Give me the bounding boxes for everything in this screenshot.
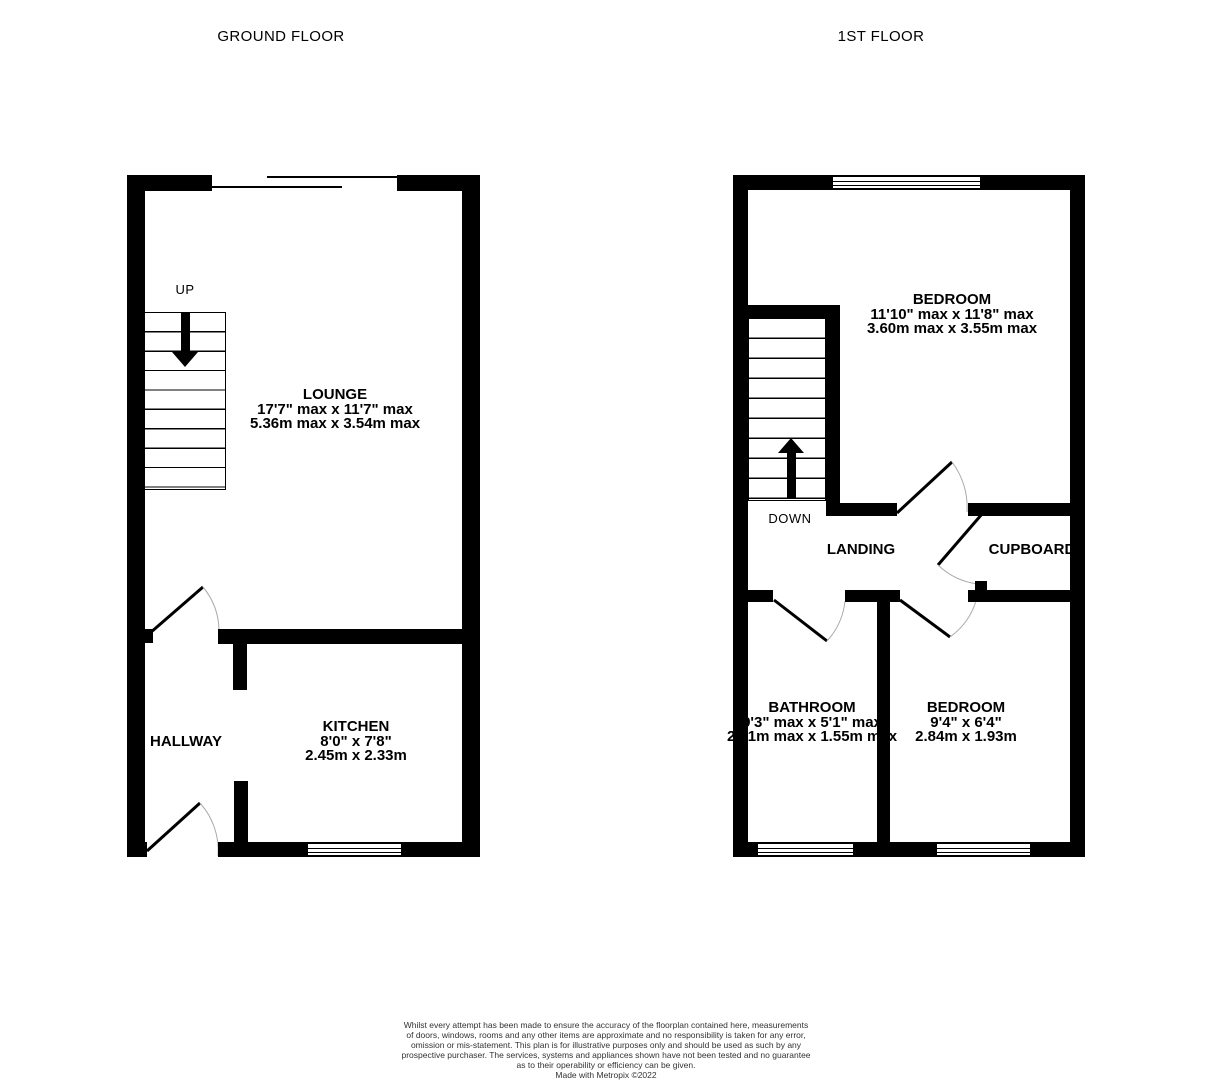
kitchen-window	[308, 842, 401, 857]
wall	[462, 175, 480, 857]
window-glazing-line	[937, 848, 1030, 849]
lounge-door-arc	[203, 587, 219, 629]
window-glazing-line	[758, 848, 853, 849]
floorplan-canvas: GROUND FLOOR 1ST FLOOR UP LOUNGE 17'7" m…	[0, 0, 1212, 1080]
window-glazing-line	[833, 181, 980, 182]
wall	[733, 175, 833, 190]
patio-door-line	[267, 176, 397, 178]
wall	[1070, 175, 1085, 857]
wall	[853, 842, 937, 857]
bedroom2-door-leaf	[900, 600, 950, 637]
wall	[748, 590, 773, 602]
wall	[218, 842, 308, 857]
wall	[826, 503, 897, 516]
window-glazing-line	[937, 852, 1030, 853]
wall	[218, 629, 465, 644]
wall	[968, 503, 1085, 516]
lounge-door-leaf	[150, 587, 203, 633]
bathroom-door-arc	[827, 601, 845, 641]
bedroom1-door-leaf	[897, 462, 952, 513]
wall	[234, 781, 248, 842]
bathroom-window	[758, 842, 853, 857]
bedroom2-door-arc	[950, 601, 976, 637]
wall	[127, 175, 212, 191]
door-swings-layer	[0, 0, 1212, 1080]
front-door-arc	[200, 803, 218, 856]
stairs-down-arrowhead-icon	[778, 438, 804, 453]
bedroom2-window	[937, 842, 1030, 857]
wall	[968, 590, 1085, 602]
cupboard-door-arc	[938, 565, 978, 584]
bathroom-door-leaf	[774, 600, 827, 641]
wall	[975, 581, 987, 591]
cupboard-door-leaf	[938, 514, 982, 565]
stairs-up-arrow-icon	[181, 313, 190, 354]
window-glazing-line	[308, 848, 401, 849]
front-door-leaf	[147, 803, 200, 851]
wall	[233, 644, 247, 690]
window-glazing-line	[758, 852, 853, 853]
wall	[845, 590, 900, 602]
wall	[1030, 842, 1085, 857]
stairs-up-arrowhead-icon	[172, 352, 198, 367]
window-glazing-line	[308, 852, 401, 853]
wall	[127, 842, 147, 857]
window-glazing-line	[833, 185, 980, 186]
wall	[826, 305, 840, 503]
wall	[733, 175, 748, 857]
wall	[733, 842, 758, 857]
wall	[145, 629, 153, 643]
bedroom1-window	[833, 175, 980, 190]
wall	[127, 175, 145, 857]
stairs-down-arrow-icon	[787, 452, 796, 499]
wall	[401, 842, 480, 857]
wall	[733, 305, 840, 318]
wall	[877, 590, 890, 842]
bedroom1-door-arc	[952, 462, 967, 512]
patio-door-line	[212, 186, 342, 188]
